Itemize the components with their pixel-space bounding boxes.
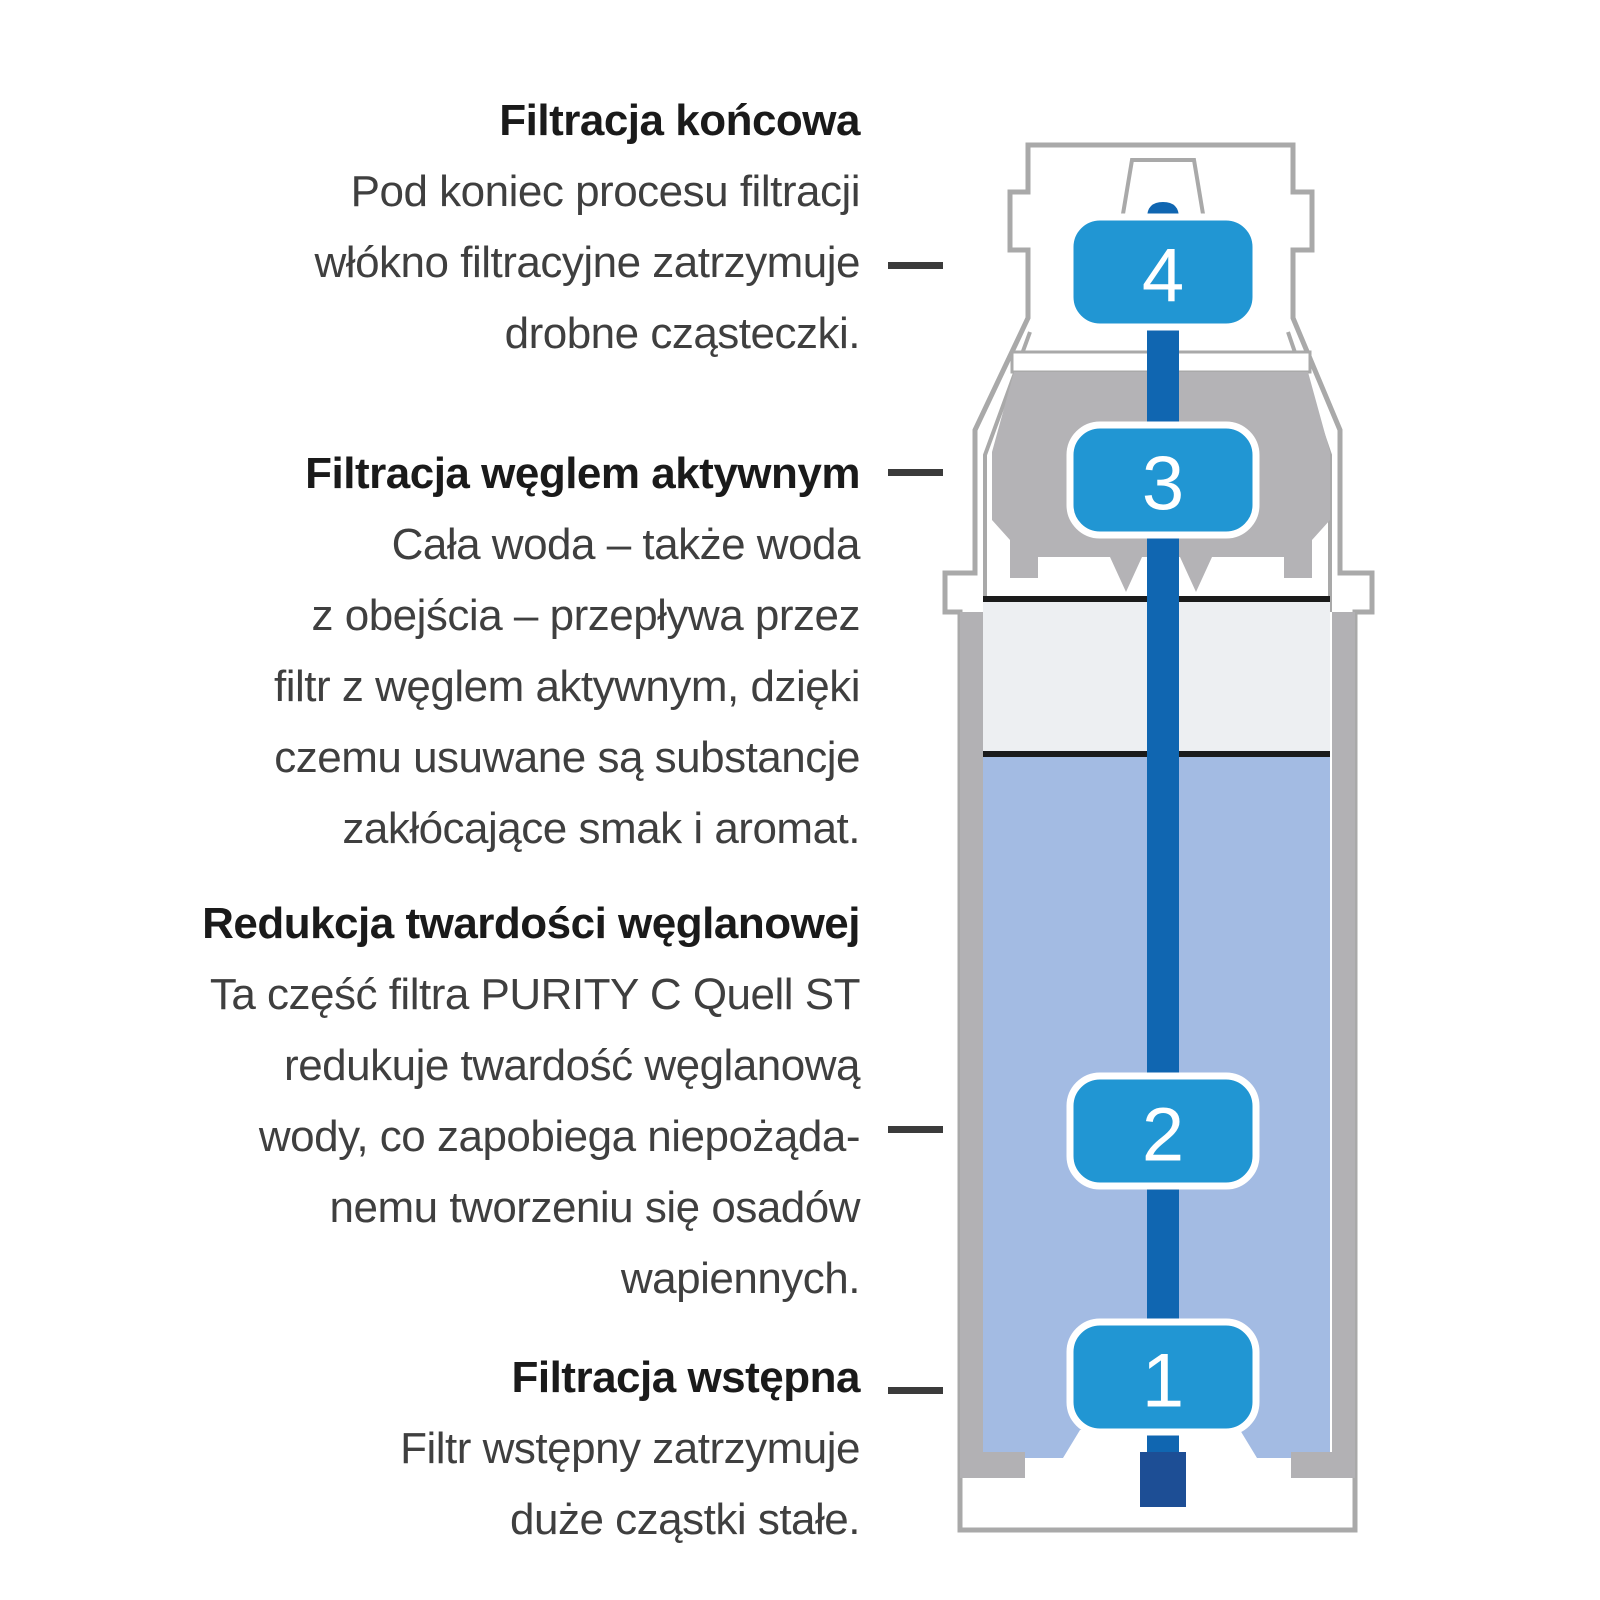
stage-badge-1-label: 1 (1142, 1339, 1184, 1424)
annotation-line: Filtr wstępny zatrzymuje (80, 1413, 860, 1484)
stage-badge-4-label: 4 (1142, 234, 1184, 319)
annotation-carbon-filtration: Filtracja węglem aktywnym Cała woda – ta… (80, 438, 860, 864)
stage-badge-4: 4 (1070, 217, 1256, 327)
annotation-line: redukuje twardość węglanową (80, 1030, 860, 1101)
stage-badge-3: 3 (1070, 425, 1256, 535)
annotation-heading: Redukcja twardości węglanowej (80, 888, 860, 959)
infographic-canvas: 4 3 2 1 Filtracja końcowa Pod koniec pro… (0, 0, 1600, 1600)
annotation-line: Pod koniec procesu filtracji (80, 156, 860, 227)
annotation-line: duże cząstki stałe. (80, 1484, 860, 1555)
annotation-line: Ta część filtra PURITY C Quell ST (80, 959, 860, 1030)
vessel-wall-right (1332, 612, 1355, 1478)
annotation-heading: Filtracja węglem aktywnym (80, 438, 860, 509)
annotation-line: włókno filtracyjne zatrzymuje (80, 227, 860, 298)
connector-line-prefilter (888, 1387, 943, 1394)
stage-badge-2-label: 2 (1142, 1093, 1184, 1178)
annotation-line: zakłócające smak i aromat. (80, 793, 860, 864)
annotation-line: nemu tworzeniu się osadów (80, 1172, 860, 1243)
annotation-line: filtr z węglem aktywnym, dzięki (80, 651, 860, 722)
annotation-final-filtration: Filtracja końcowa Pod koniec procesu fil… (80, 85, 860, 369)
pedestal-foot-right (1291, 1452, 1333, 1478)
annotation-line: wody, co zapobiega niepożąda- (80, 1101, 860, 1172)
riser-tube-outlet (1140, 1452, 1186, 1507)
pedestal-foot-left (983, 1452, 1025, 1478)
connector-line-final (888, 262, 943, 269)
riser-tube (1147, 202, 1179, 1452)
connector-line-hardness (888, 1126, 943, 1133)
annotation-line: drobne cząsteczki. (80, 298, 860, 369)
annotation-heading: Filtracja końcowa (80, 85, 860, 156)
annotation-pre-filtration: Filtracja wstępna Filtr wstępny zatrzymu… (80, 1342, 860, 1555)
vessel-wall-left (960, 612, 983, 1478)
annotation-hardness-reduction: Redukcja twardości węglanowej Ta część f… (80, 888, 860, 1314)
stage-badge-3-label: 3 (1142, 442, 1184, 527)
annotation-line: z obejścia – przepływa przez (80, 580, 860, 651)
connector-line-carbon (888, 469, 943, 476)
annotation-line: wapiennych. (80, 1243, 860, 1314)
annotation-heading: Filtracja wstępna (80, 1342, 860, 1413)
stage-badge-1: 1 (1070, 1322, 1256, 1432)
stage-badge-2: 2 (1070, 1076, 1256, 1186)
annotation-line: Cała woda – także woda (80, 509, 860, 580)
annotation-line: czemu usuwane są substancje (80, 722, 860, 793)
